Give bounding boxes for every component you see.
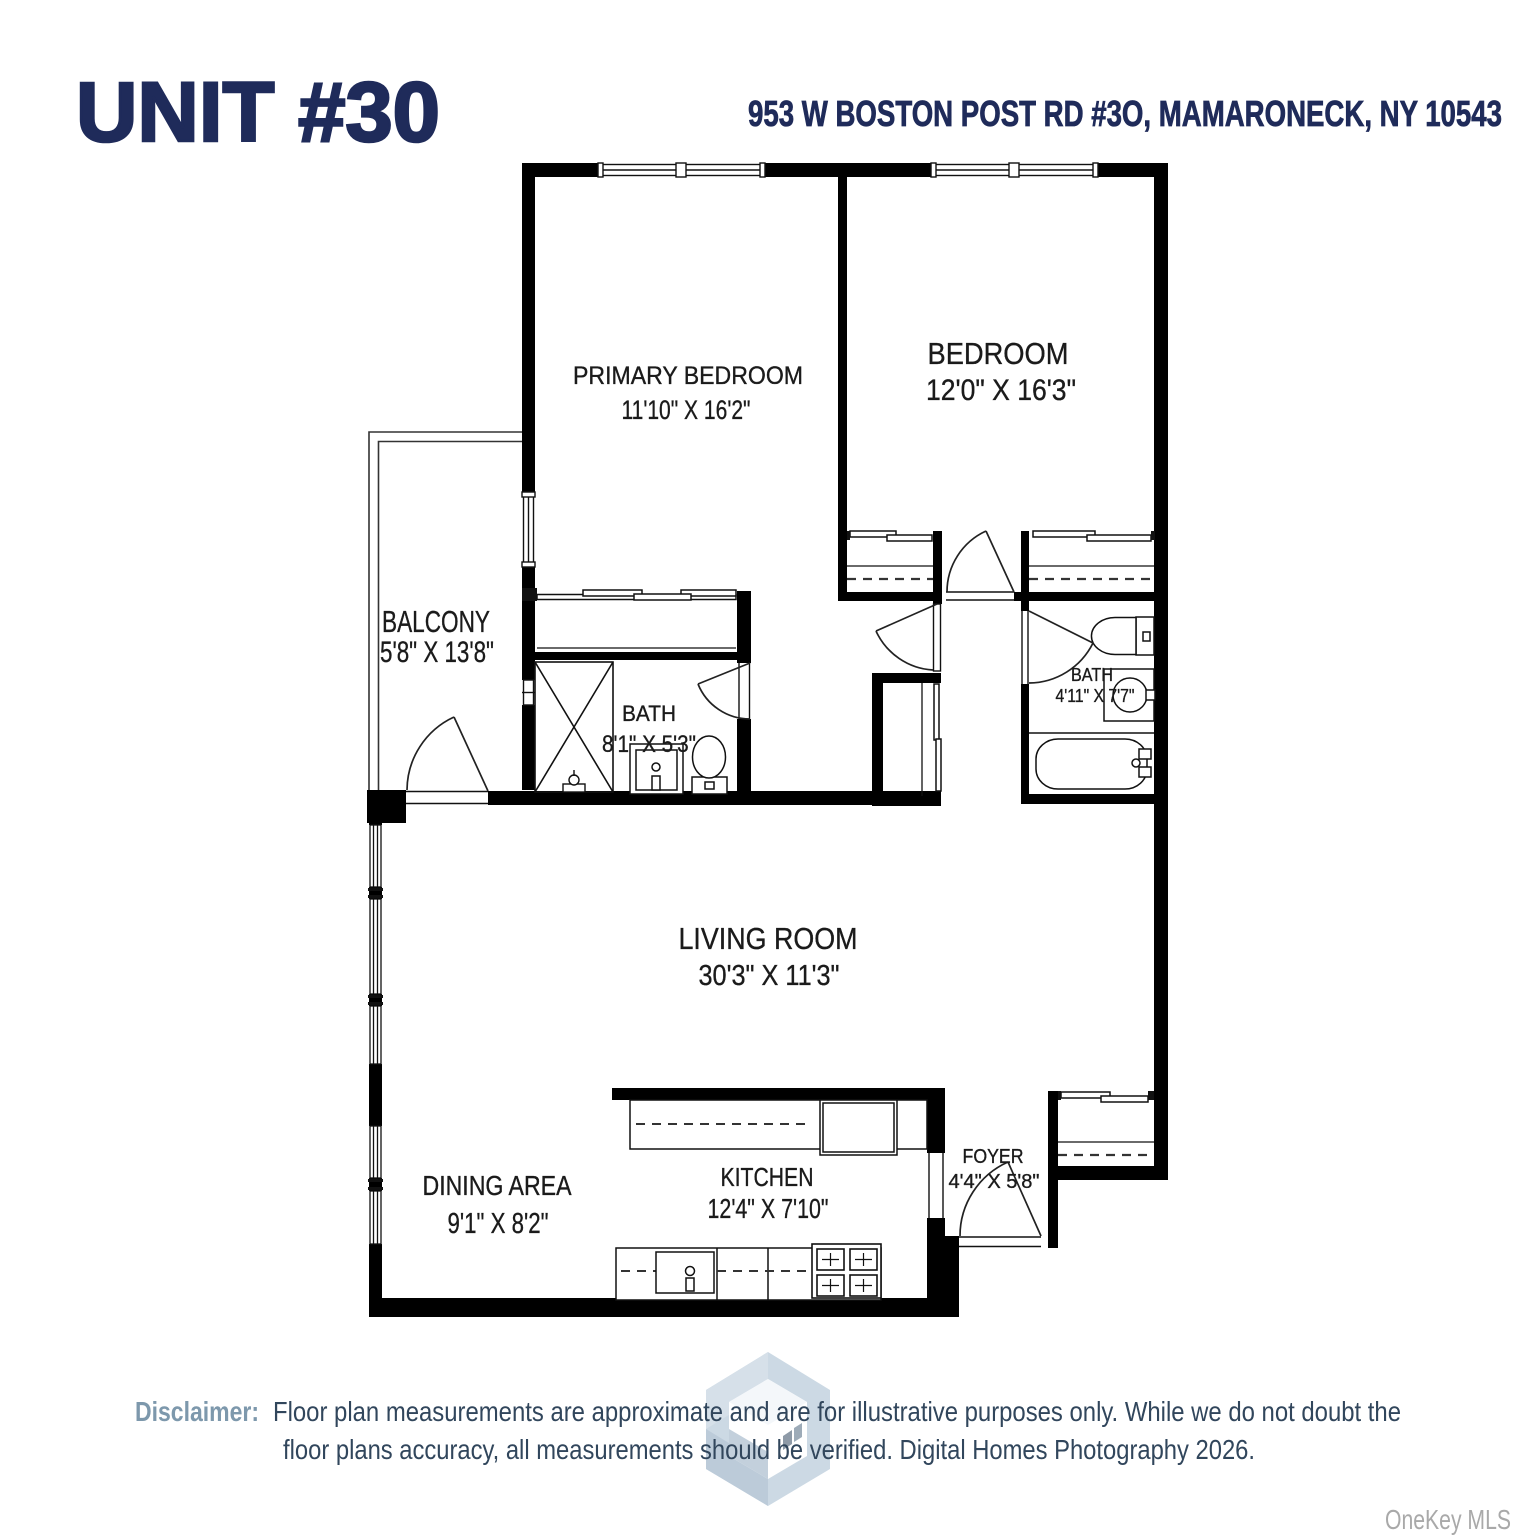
svg-text:OneKey MLS: OneKey MLS (1385, 1504, 1511, 1535)
svg-text:KITCHEN: KITCHEN (721, 1162, 814, 1192)
svg-text:30'3" X 11'3": 30'3" X 11'3" (699, 960, 840, 992)
svg-text:12'4" X 7'10": 12'4" X 7'10" (708, 1193, 829, 1224)
svg-text:Disclaimer:: Disclaimer: (135, 1396, 259, 1427)
svg-text:4'11" X 7'7": 4'11" X 7'7" (1056, 686, 1135, 706)
svg-text:UNIT #30: UNIT #30 (76, 65, 440, 159)
svg-text:FOYER: FOYER (963, 1146, 1024, 1168)
svg-text:BALCONY: BALCONY (382, 604, 490, 639)
svg-text:4'4" X 5'8": 4'4" X 5'8" (949, 1171, 1040, 1193)
svg-text:BATH: BATH (1071, 665, 1113, 685)
svg-text:5'8" X 13'8": 5'8" X 13'8" (380, 636, 494, 669)
svg-text:8'1" X 5'3": 8'1" X 5'3" (602, 731, 696, 758)
svg-text:BEDROOM: BEDROOM (928, 336, 1069, 371)
svg-text:LIVING ROOM: LIVING ROOM (679, 921, 858, 956)
svg-text:DINING AREA: DINING AREA (423, 1170, 572, 1201)
svg-text:BATH: BATH (622, 701, 676, 726)
svg-text:953 W BOSTON POST RD #3O, MAMA: 953 W BOSTON POST RD #3O, MAMARONECK, NY… (748, 93, 1502, 134)
svg-text:Floor plan measurements are ap: Floor plan measurements are approximate … (273, 1396, 1401, 1427)
svg-text:9'1" X 8'2": 9'1" X 8'2" (448, 1208, 549, 1240)
svg-text:11'10" X 16'2": 11'10" X 16'2" (622, 395, 751, 425)
svg-text:12'0" X 16'3": 12'0" X 16'3" (926, 374, 1076, 407)
svg-text:floor plans accuracy, all meas: floor plans accuracy, all measurements s… (283, 1434, 1255, 1465)
svg-text:PRIMARY BEDROOM: PRIMARY BEDROOM (573, 362, 803, 390)
